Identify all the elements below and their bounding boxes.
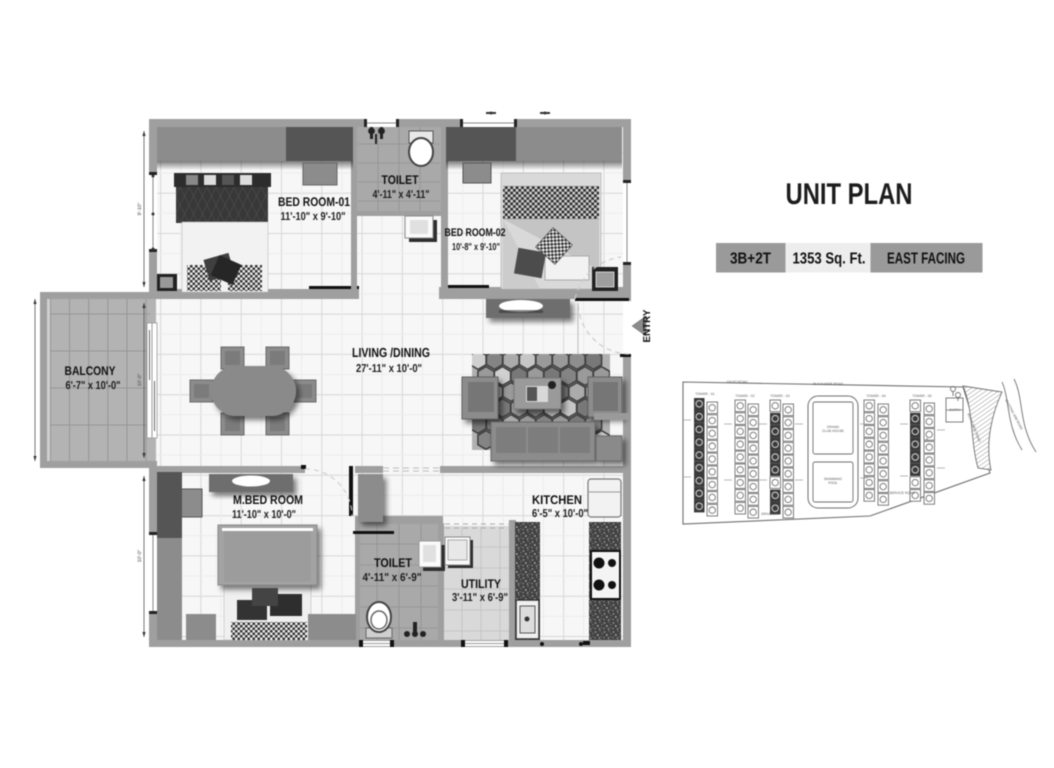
svg-text:DRIVEWAY: DRIVEWAY	[761, 512, 779, 516]
svg-text:4'-11" x 6'-9": 4'-11" x 6'-9"	[363, 572, 422, 584]
svg-text:BED ROOM-02: BED ROOM-02	[445, 227, 506, 239]
svg-text:11'-10" x 9'-10": 11'-10" x 9'-10"	[281, 211, 346, 223]
svg-text:1353 Sq. Ft.: 1353 Sq. Ft.	[793, 251, 866, 268]
svg-text:M.BED ROOM: M.BED ROOM	[233, 493, 303, 507]
svg-text:TOWER - 03: TOWER - 03	[770, 394, 789, 398]
svg-text:4'-11" x 4'-11": 4'-11" x 4'-11"	[373, 189, 430, 201]
svg-text:CLUB HOUSE: CLUB HOUSE	[822, 429, 844, 433]
svg-text:GRAND: GRAND	[827, 425, 839, 429]
svg-text:30.0 M WIDE ROAD: 30.0 M WIDE ROAD	[813, 382, 844, 386]
svg-text:UTILITY: UTILITY	[461, 577, 502, 591]
svg-text:TOWER - 01: TOWER - 01	[695, 392, 714, 396]
svg-text:UNIT PLAN: UNIT PLAN	[786, 178, 913, 211]
svg-text:TOWER - 02: TOWER - 02	[735, 394, 754, 398]
svg-text:TOWER - 05: TOWER - 05	[912, 394, 931, 398]
svg-text:BED ROOM-01: BED ROOM-01	[278, 195, 350, 209]
svg-text:ENTRY: ENTRY	[949, 408, 961, 412]
svg-text:9'-10": 9'-10"	[137, 202, 143, 215]
svg-text:100 FT ROAD: 100 FT ROAD	[726, 380, 747, 384]
svg-text:10'-0": 10'-0"	[137, 549, 143, 562]
svg-text:10'-0": 10'-0"	[137, 373, 143, 386]
svg-text:27'-11" x 10'-0": 27'-11" x 10'-0"	[356, 363, 422, 375]
svg-text:SERVICE ROAD: SERVICE ROAD	[889, 491, 914, 495]
svg-text:A: A	[926, 437, 929, 441]
svg-text:3B+2T: 3B+2T	[730, 251, 771, 268]
svg-text:BALCONY: BALCONY	[65, 364, 117, 378]
svg-text:TOWER - 04: TOWER - 04	[866, 394, 885, 398]
svg-text:3'-11" x 6'-9": 3'-11" x 6'-9"	[452, 592, 508, 604]
svg-text:TOILET: TOILET	[382, 173, 419, 187]
svg-text:EAST FACING: EAST FACING	[887, 251, 965, 268]
svg-text:10'-8" x 9'-10": 10'-8" x 9'-10"	[452, 242, 500, 253]
svg-text:SWIMMING: SWIMMING	[824, 477, 842, 481]
svg-text:KITCHEN: KITCHEN	[532, 493, 582, 507]
svg-text:LIVING /DINING: LIVING /DINING	[352, 345, 430, 360]
svg-text:POOL: POOL	[828, 481, 838, 485]
svg-text:11'-10" x 10'-0": 11'-10" x 10'-0"	[232, 509, 296, 521]
svg-text:6'-5" x 10'-0": 6'-5" x 10'-0"	[532, 508, 588, 520]
svg-text:ENTRY: ENTRY	[642, 309, 653, 342]
svg-text:TOILET: TOILET	[374, 556, 412, 570]
svg-text:6'-7" x 10'-0": 6'-7" x 10'-0"	[66, 380, 121, 392]
